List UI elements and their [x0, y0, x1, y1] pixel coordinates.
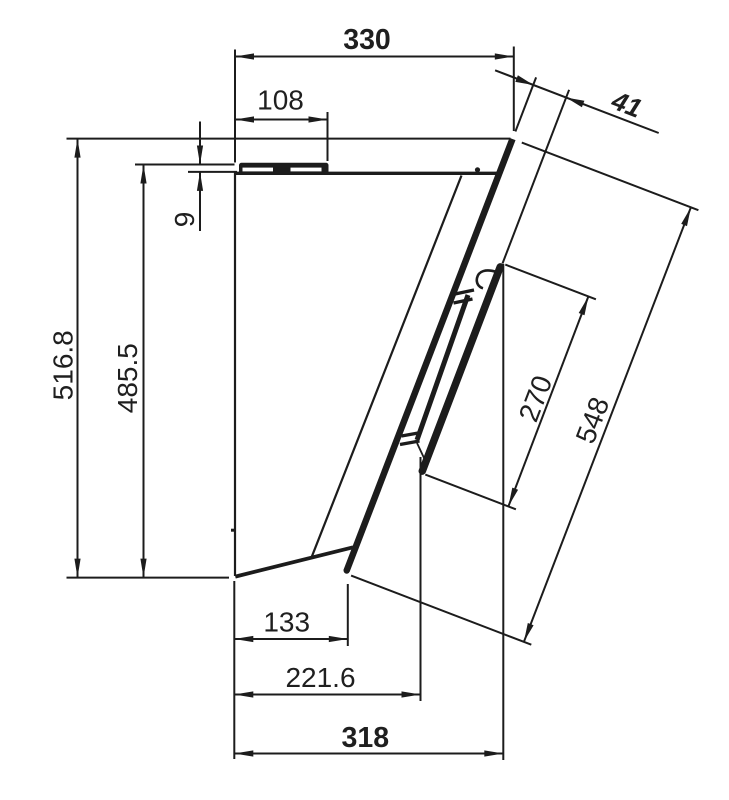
svg-text:108: 108 — [257, 85, 304, 116]
svg-text:221.6: 221.6 — [285, 662, 355, 693]
svg-text:485.5: 485.5 — [112, 343, 143, 413]
svg-text:318: 318 — [342, 722, 390, 754]
svg-text:9: 9 — [169, 212, 200, 228]
svg-text:330: 330 — [343, 24, 391, 56]
svg-text:133: 133 — [263, 607, 310, 638]
svg-text:516.8: 516.8 — [48, 330, 79, 400]
